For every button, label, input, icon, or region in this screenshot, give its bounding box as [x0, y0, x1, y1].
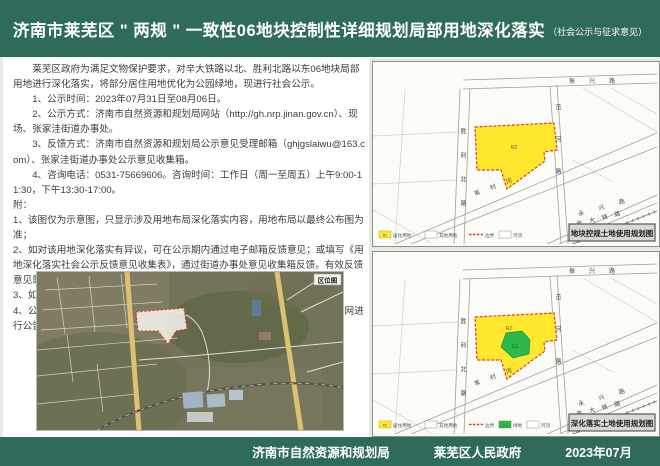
page-subtitle: （社会公示与征求意见）	[548, 25, 647, 38]
parcel-r2-label: R2	[511, 145, 518, 151]
legend-code-r2: R2	[383, 423, 388, 427]
appendix-label: 附：	[13, 198, 366, 213]
legend-label-boundary: 边界	[485, 422, 495, 429]
legend-label-residential: 居住用地	[393, 232, 412, 239]
road-label-shengli: 胜利北路	[459, 317, 466, 414]
notice-item-2: 2、公示方式：济南市自然资源和规划局网站（http://gh.nrp.jinan…	[13, 107, 366, 137]
road-label-zhenxing: 振兴路	[569, 267, 629, 275]
parcel-r2-label: R2	[506, 326, 513, 332]
map-caption: 地块控规土地使用规划图	[569, 224, 655, 241]
legend-code-r2: R2	[383, 233, 388, 237]
legend-label-boundary: 边界	[485, 232, 495, 239]
appendix-item-1: 1、该图仅为示意图，只显示涉及用地布局深化落实内容，用地布局以最终公布图为准；	[13, 213, 366, 243]
implementation-plan-map: R2 G1 振兴路 胜利北路 苋河路 苇村河 永兴路 辛大铁路 R2 居住用地 …	[372, 251, 660, 437]
park-g1-label: G1	[512, 344, 519, 350]
map-caption: 深化落实土地使用规划图	[569, 414, 655, 431]
legend-code-g1: G1	[503, 423, 508, 427]
road-label-weicun: 苇村河	[473, 362, 523, 388]
legend-label-other: 其他用地	[439, 232, 458, 239]
header-bar: 济南市莱芜区 " 两规 " 一致性06地块控制性详细规划局部用地深化落实 （社会…	[0, 0, 660, 57]
footer-government: 莱芜区人民政府	[434, 442, 522, 461]
road-label-weicun: 苇村河	[473, 172, 523, 198]
notice-item-1: 1、公示时间：2023年07月31日至08月06日。	[13, 92, 366, 107]
road-label-shengli: 胜利北路	[459, 127, 466, 224]
road-label-xianhe: 苋河路	[554, 293, 561, 390]
footer-bar: 济南市自然资源和规划局 莱芜区人民政府 2023年07月	[0, 437, 660, 466]
notice-intro: 莱芜区政府为满足文物保护要求，对辛大铁路以北、胜利北路以东06地块局部用地进行深…	[13, 62, 366, 92]
legend-label-residential: 居住用地	[393, 422, 412, 429]
legend: R2 居住用地 其他用地 边界 河流	[379, 231, 523, 239]
legend-label-other: 其他用地	[439, 422, 458, 429]
location-satellite-map: 区位图	[36, 271, 344, 431]
road-label-zhenxing: 振兴路	[569, 77, 629, 85]
footer-authority: 济南市自然资源和规划局	[252, 442, 390, 461]
notice-item-3: 3、反馈方式：济南市自然资源和规划局公示意见受理邮箱（ghjgslaiwu@16…	[13, 137, 366, 167]
legend-label-river: 河流	[513, 232, 523, 239]
notice-item-4: 4、咨询电话：0531-75669606。咨询时间：工作日（周一至周五）上午9:…	[13, 168, 366, 198]
map-caption-label: 深化落实土地使用规划图	[571, 418, 654, 428]
legend-label-green: 绿地	[513, 422, 523, 428]
footer-date: 2023年07月	[565, 442, 632, 461]
location-map-title-chip: 区位图	[314, 274, 341, 285]
road-label-xianhe: 苋河路	[554, 103, 561, 200]
page-title: 济南市莱芜区 " 两规 " 一致性06地块控制性详细规划局部用地深化落实	[13, 17, 545, 41]
regulatory-plan-map: R2 振兴路 胜利北路 苋河路 苇村河 永兴路 辛大铁路 R2 居住用地 其他用…	[372, 61, 660, 247]
location-map-label: 区位图	[318, 276, 338, 285]
legend-label-river: 河流	[541, 422, 551, 429]
map-caption-label: 地块控规土地使用规划图	[571, 228, 654, 238]
public-notice-page: 济南市莱芜区 " 两规 " 一致性06地块控制性详细规划局部用地深化落实 （社会…	[0, 0, 660, 466]
